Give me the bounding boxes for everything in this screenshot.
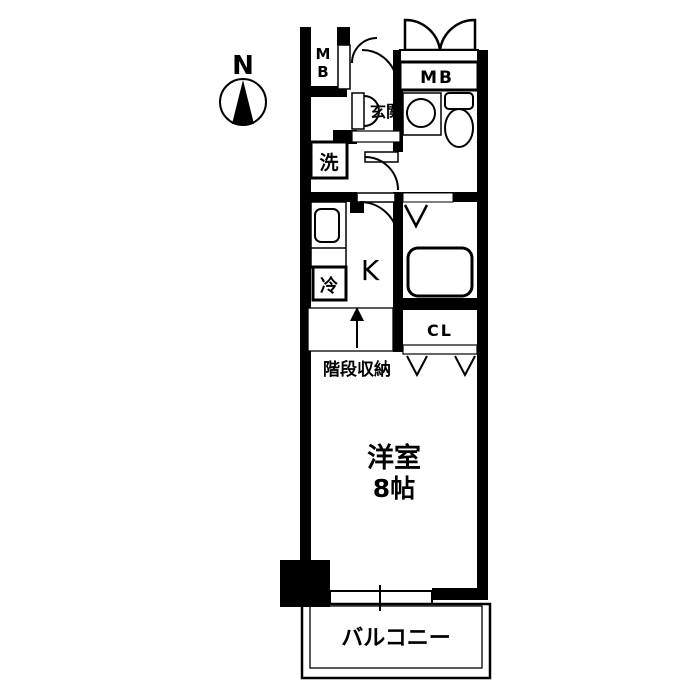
toilet-bowl-icon (445, 109, 473, 147)
toilet-room (403, 93, 473, 147)
wall-right-outer (477, 50, 488, 600)
compass-needle-icon (232, 80, 254, 124)
kitchen-label: K (361, 254, 380, 287)
bathtub-icon (408, 248, 472, 296)
entrance-step (352, 131, 400, 142)
room-size-label: 8帖 (373, 474, 415, 503)
double-door-right-leaf-icon (440, 20, 475, 50)
toilet-tank-icon (445, 93, 473, 109)
closet-area: CL (403, 321, 477, 375)
stair-storage: 階段収納 (308, 307, 393, 380)
closet-folding-door-right-icon (455, 356, 475, 375)
double-door-left-leaf-icon (405, 20, 440, 50)
wall-mid-left (300, 192, 357, 202)
washer-label: 洗 (319, 151, 338, 174)
wall-closet-top (393, 298, 488, 310)
closet-label: CL (427, 321, 453, 340)
meter-box-right-label: MB (420, 68, 454, 88)
room-name-label: 洋室 (367, 442, 421, 474)
meter-box-left-label-line1: M (316, 45, 331, 63)
entrance-door-leaf (352, 93, 364, 129)
kitchen-door-arc-icon (360, 202, 398, 240)
pillar-bottom-left (280, 560, 330, 607)
entry-threshold (400, 50, 478, 62)
bathroom-vanity-strip (403, 193, 453, 202)
bathroom-folding-door-icon (405, 205, 427, 226)
bathroom (403, 193, 472, 296)
wall-central-lower (393, 198, 403, 352)
washer-area: 洗 (311, 142, 347, 178)
entrance-label: 玄関 (370, 102, 402, 121)
stair-storage-label: 階段収納 (323, 359, 391, 380)
wall-left-outer (300, 27, 311, 560)
meter-box-right: MB (400, 62, 478, 90)
kitchen-door-leaf (357, 193, 395, 202)
balcony-label: バルコニー (341, 626, 451, 651)
main-room: 洋室 8帖 (367, 442, 421, 503)
fridge-label: 冷 (320, 275, 338, 297)
kitchen-area: K 冷 (311, 202, 380, 300)
meter-box-left-door-leaf (338, 45, 350, 89)
stair-storage-outline (308, 308, 393, 351)
washbasin-icon (407, 99, 435, 127)
floor-plan-canvas: N MB M B 玄関 (0, 0, 700, 700)
entry-double-door (400, 20, 478, 62)
meter-box-left: M B (316, 38, 397, 89)
wall-bottom-right (432, 588, 482, 600)
compass: N (220, 51, 266, 125)
kitchen-sink-icon (315, 209, 339, 242)
door-swing-arc-large-icon (362, 50, 397, 85)
closet-folding-door-left-icon (407, 356, 427, 375)
floor-plan-drawing: N MB M B 玄関 (0, 0, 700, 700)
interior-doors (357, 152, 398, 240)
meter-box-left-label-line2: B (317, 63, 328, 81)
compass-north-label: N (232, 51, 254, 81)
closet-door-rail (403, 345, 477, 354)
wall-top-stub (337, 27, 350, 45)
